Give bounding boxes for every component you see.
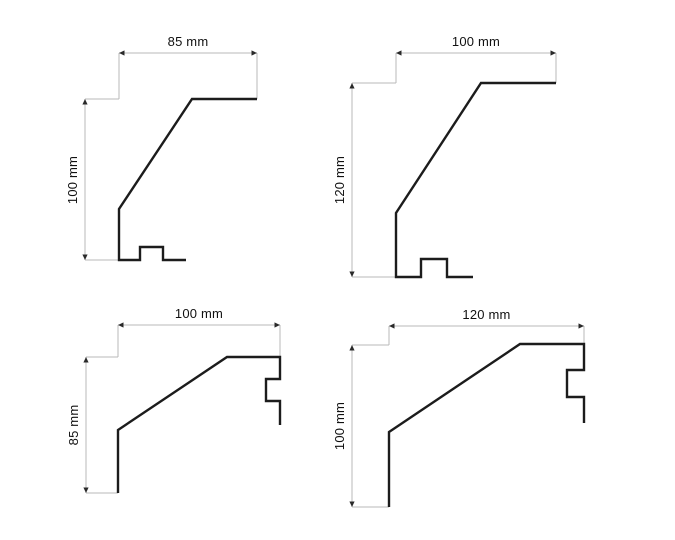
profile-top-left-width-dim-arrow-right xyxy=(252,50,258,55)
height-dimension-label-top-right: 120 mm xyxy=(333,156,347,204)
height-dimension-label-bottom-left: 85 mm xyxy=(67,405,81,446)
width-dimension-label-top-left: 85 mm xyxy=(168,35,209,49)
profile-top-left-width-dim-arrow-left xyxy=(119,50,125,55)
width-dimension-label-bottom-left: 100 mm xyxy=(175,307,223,321)
profile-bottom-right-outline xyxy=(389,344,584,507)
profile-top-right-height-dim-arrow-bottom xyxy=(349,272,354,278)
profile-top-left-height-dim-arrow-top xyxy=(82,99,87,105)
profile-bottom-left-width-dim-arrow-right xyxy=(275,322,281,327)
profile-bottom-right-width-dim-arrow-right xyxy=(579,323,585,328)
profile-top-right-width-dim-arrow-right xyxy=(551,50,557,55)
profile-bottom-left-outline xyxy=(118,357,280,493)
profile-bottom-left-height-dim-arrow-bottom xyxy=(83,488,88,494)
profile-bottom-right-height-dim-arrow-top xyxy=(349,345,354,351)
profile-bottom-right-width-dim-arrow-left xyxy=(389,323,395,328)
width-dimension-label-top-right: 100 mm xyxy=(452,35,500,49)
profile-top-right-width-dim-arrow-left xyxy=(396,50,402,55)
profile-bottom-right-height-dim-arrow-bottom xyxy=(349,502,354,508)
profile-bottom-left-width-dim-arrow-left xyxy=(118,322,124,327)
profile-top-left-outline xyxy=(119,99,257,260)
profile-top-right-outline xyxy=(396,83,556,277)
profile-top-left-height-dim-arrow-bottom xyxy=(82,255,87,261)
profiles-svg xyxy=(0,0,675,540)
height-dimension-label-bottom-right: 100 mm xyxy=(333,402,347,450)
profile-top-right-height-dim-arrow-top xyxy=(349,83,354,89)
drawing-canvas: 85 mm 100 mm 100 mm 120 mm 100 mm 85 mm … xyxy=(0,0,675,540)
height-dimension-label-top-left: 100 mm xyxy=(66,155,80,203)
profile-bottom-left-height-dim-arrow-top xyxy=(83,357,88,363)
width-dimension-label-bottom-right: 120 mm xyxy=(462,308,510,322)
